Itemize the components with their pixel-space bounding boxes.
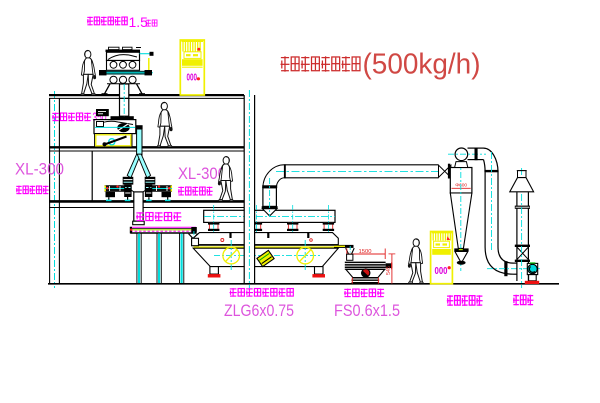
svg-text:1500: 1500 xyxy=(359,249,372,255)
svg-text:000: 000 xyxy=(435,266,448,277)
svg-text:ZLG6x0.75: ZLG6x0.75 xyxy=(224,301,294,320)
svg-text:Φ600: Φ600 xyxy=(455,182,467,188)
svg-text:1.5: 1.5 xyxy=(129,14,149,30)
svg-text:XL-300: XL-300 xyxy=(15,161,64,179)
svg-text:FS0.6x1.5: FS0.6x1.5 xyxy=(334,301,400,320)
svg-text:(500kg/h): (500kg/h) xyxy=(363,49,481,81)
svg-text:000: 000 xyxy=(187,73,198,84)
svg-text:545: 545 xyxy=(386,266,392,275)
